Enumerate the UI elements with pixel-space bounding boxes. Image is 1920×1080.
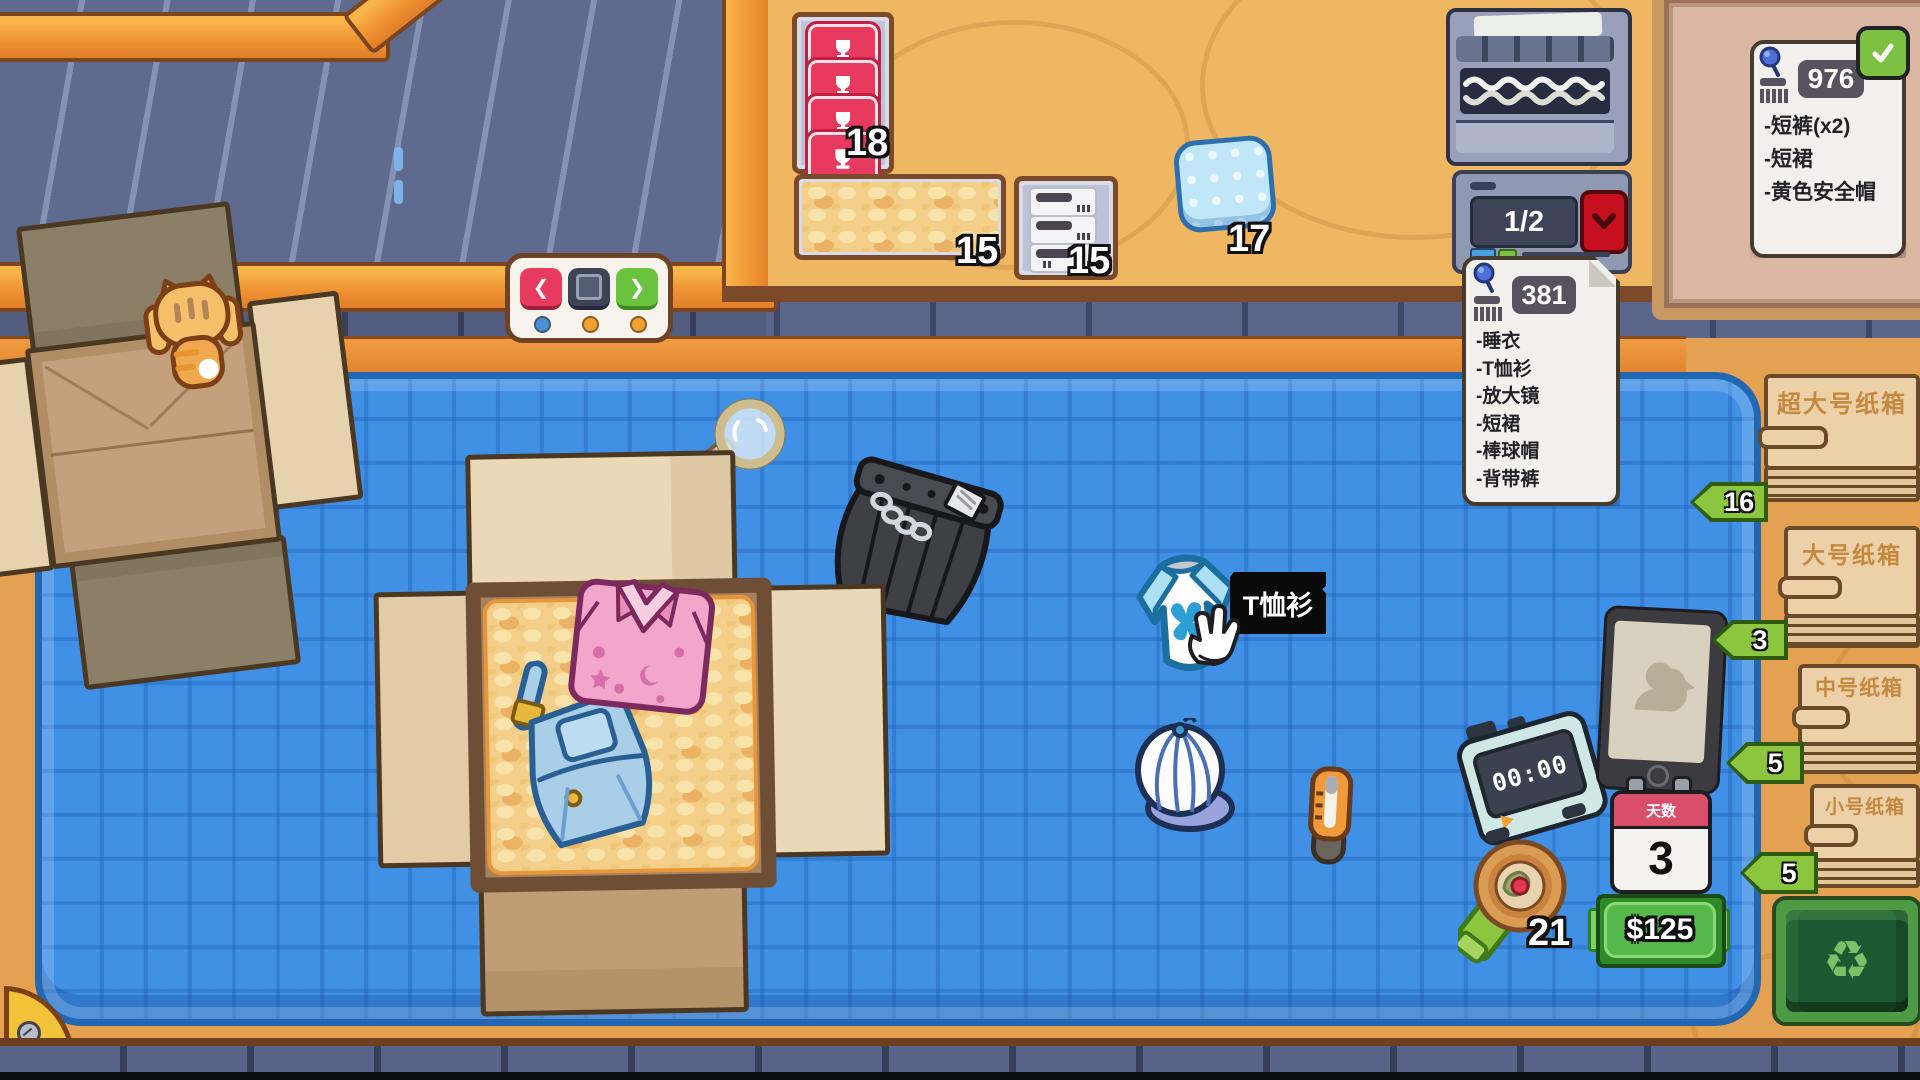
- box-flap-left[interactable]: [374, 591, 479, 869]
- stack-count-tag: 16: [1690, 482, 1768, 522]
- device-detail: [1470, 182, 1496, 190]
- tablet[interactable]: [1595, 605, 1728, 795]
- stack-label: 中号纸箱: [1798, 672, 1920, 702]
- stack-xl-boxes[interactable]: 超大号纸箱: [1764, 374, 1920, 500]
- box-interior[interactable]: [465, 577, 776, 892]
- recycle-icon: ♻: [1823, 934, 1871, 988]
- chevron-down-icon: [1590, 211, 1618, 233]
- game-scene: 18 15 15 17 1/2: [0, 0, 1920, 1080]
- order-item: -放大镜: [1476, 383, 1539, 411]
- order-item: -黄色安全帽: [1764, 176, 1876, 209]
- active-order-note[interactable]: 381 -睡衣 -T恤衫 -放大镜 -短裙 -棒球帽 -背带裤: [1462, 256, 1620, 506]
- order-item: -短裙: [1476, 411, 1539, 439]
- box-pull-tab: [1758, 426, 1828, 449]
- pajamas-item[interactable]: [552, 565, 732, 731]
- box-pull-tab: [1792, 706, 1850, 729]
- recycle-bin-opening: ♻: [1786, 910, 1908, 1012]
- recycle-bin[interactable]: ♻: [1772, 896, 1920, 1026]
- stack-l-boxes[interactable]: 大号纸箱: [1784, 526, 1920, 644]
- order-item: -短裙: [1764, 143, 1876, 176]
- shipping-label[interactable]: [1029, 187, 1097, 217]
- order-item: -T恤衫: [1476, 356, 1539, 384]
- tape-count: 21: [1528, 912, 1570, 955]
- pushpin-icon: [1470, 262, 1502, 296]
- stack-label: 超大号纸箱: [1764, 384, 1920, 419]
- money[interactable]: $125: [1596, 894, 1718, 960]
- box-counter-display: 1/2: [1470, 196, 1578, 248]
- order-item: -短裤(x2): [1764, 110, 1876, 143]
- stack-s-boxes[interactable]: 小号纸箱: [1810, 784, 1920, 884]
- indicator-light-blue: [534, 316, 551, 333]
- check-icon: [1870, 41, 1896, 65]
- machine-grill: [1456, 36, 1614, 62]
- machine-opening: [1460, 68, 1610, 114]
- order-items-list: -短裤(x2) -短裙 -黄色安全帽: [1764, 110, 1876, 209]
- stack-count-tag: 5: [1740, 852, 1818, 894]
- order-id-badge: 976: [1798, 60, 1864, 98]
- calendar-day: 3: [1614, 829, 1708, 887]
- cat[interactable]: [137, 269, 250, 395]
- calendar-header: 天数: [1614, 794, 1708, 829]
- stack-edges: [1784, 614, 1920, 648]
- stack-edges: [1810, 858, 1920, 888]
- baseball-cap-item[interactable]: [1130, 718, 1235, 836]
- stack-m-boxes[interactable]: 中号纸箱: [1798, 664, 1920, 770]
- stop-icon: [576, 274, 602, 300]
- conveyor-rail-top: [0, 12, 390, 62]
- order-item: -背带裤: [1476, 466, 1539, 494]
- calendar[interactable]: 天数 3: [1610, 786, 1704, 888]
- pushpin-icon: [1756, 46, 1788, 80]
- stack-edges: [1798, 742, 1920, 774]
- order-items-list: -睡衣 -T恤衫 -放大镜 -短裙 -棒球帽 -背带裤: [1476, 328, 1539, 493]
- order-item: -睡衣: [1476, 328, 1539, 356]
- item-tooltip: T恤衫: [1230, 572, 1326, 634]
- box-pull-tab: [1778, 576, 1842, 599]
- home-button: [1646, 764, 1669, 787]
- order-id-badge: 381: [1512, 276, 1576, 314]
- stack-label: 大号纸箱: [1784, 536, 1920, 570]
- next-button[interactable]: ❯: [616, 268, 658, 310]
- indicator-light-orange: [630, 316, 647, 333]
- box-pull-tab: [1804, 824, 1858, 847]
- hand-cursor: [1186, 604, 1240, 668]
- barcode-icon: [1760, 78, 1794, 106]
- stack-count-tag: 5: [1726, 742, 1804, 784]
- open-cardboard-box[interactable]: [367, 444, 889, 1019]
- conveyor-control-panel: ❮ ❯: [505, 253, 673, 343]
- wrapping-machine[interactable]: [1446, 8, 1632, 166]
- labels-count: 15: [1068, 240, 1110, 283]
- bubble-wrap-count: 17: [1228, 218, 1270, 261]
- stack-edges: [1764, 466, 1920, 502]
- tablet-screen: [1608, 620, 1711, 763]
- stack-count-tag: 3: [1712, 620, 1788, 660]
- belt-mark: [394, 180, 403, 204]
- thermometer-item[interactable]: [1303, 765, 1356, 869]
- stack-label: 小号纸箱: [1810, 792, 1920, 819]
- machine-tray: [1456, 120, 1614, 153]
- indicator-light-orange: [582, 316, 599, 333]
- barcode-icon: [1474, 296, 1508, 324]
- peanuts-count: 15: [956, 230, 998, 273]
- belt-mark: [394, 147, 403, 171]
- stop-button[interactable]: [568, 268, 610, 310]
- floor-strip: [0, 1046, 1920, 1072]
- shredded-paper: [1460, 68, 1610, 114]
- box-crease: [44, 366, 148, 430]
- table-bottom-edge: [0, 1038, 1920, 1046]
- box-crease: [51, 429, 254, 457]
- prev-button[interactable]: ❮: [520, 268, 562, 310]
- order-complete-badge: [1856, 26, 1910, 80]
- duck-logo-icon: [1621, 653, 1699, 731]
- confirm-button[interactable]: [1580, 190, 1628, 254]
- cat-box[interactable]: [0, 179, 383, 701]
- sticker-count: 18: [846, 122, 888, 165]
- money-amount: $125: [1627, 913, 1694, 947]
- floor-shadow: [0, 1072, 1920, 1080]
- order-item: -棒球帽: [1476, 438, 1539, 466]
